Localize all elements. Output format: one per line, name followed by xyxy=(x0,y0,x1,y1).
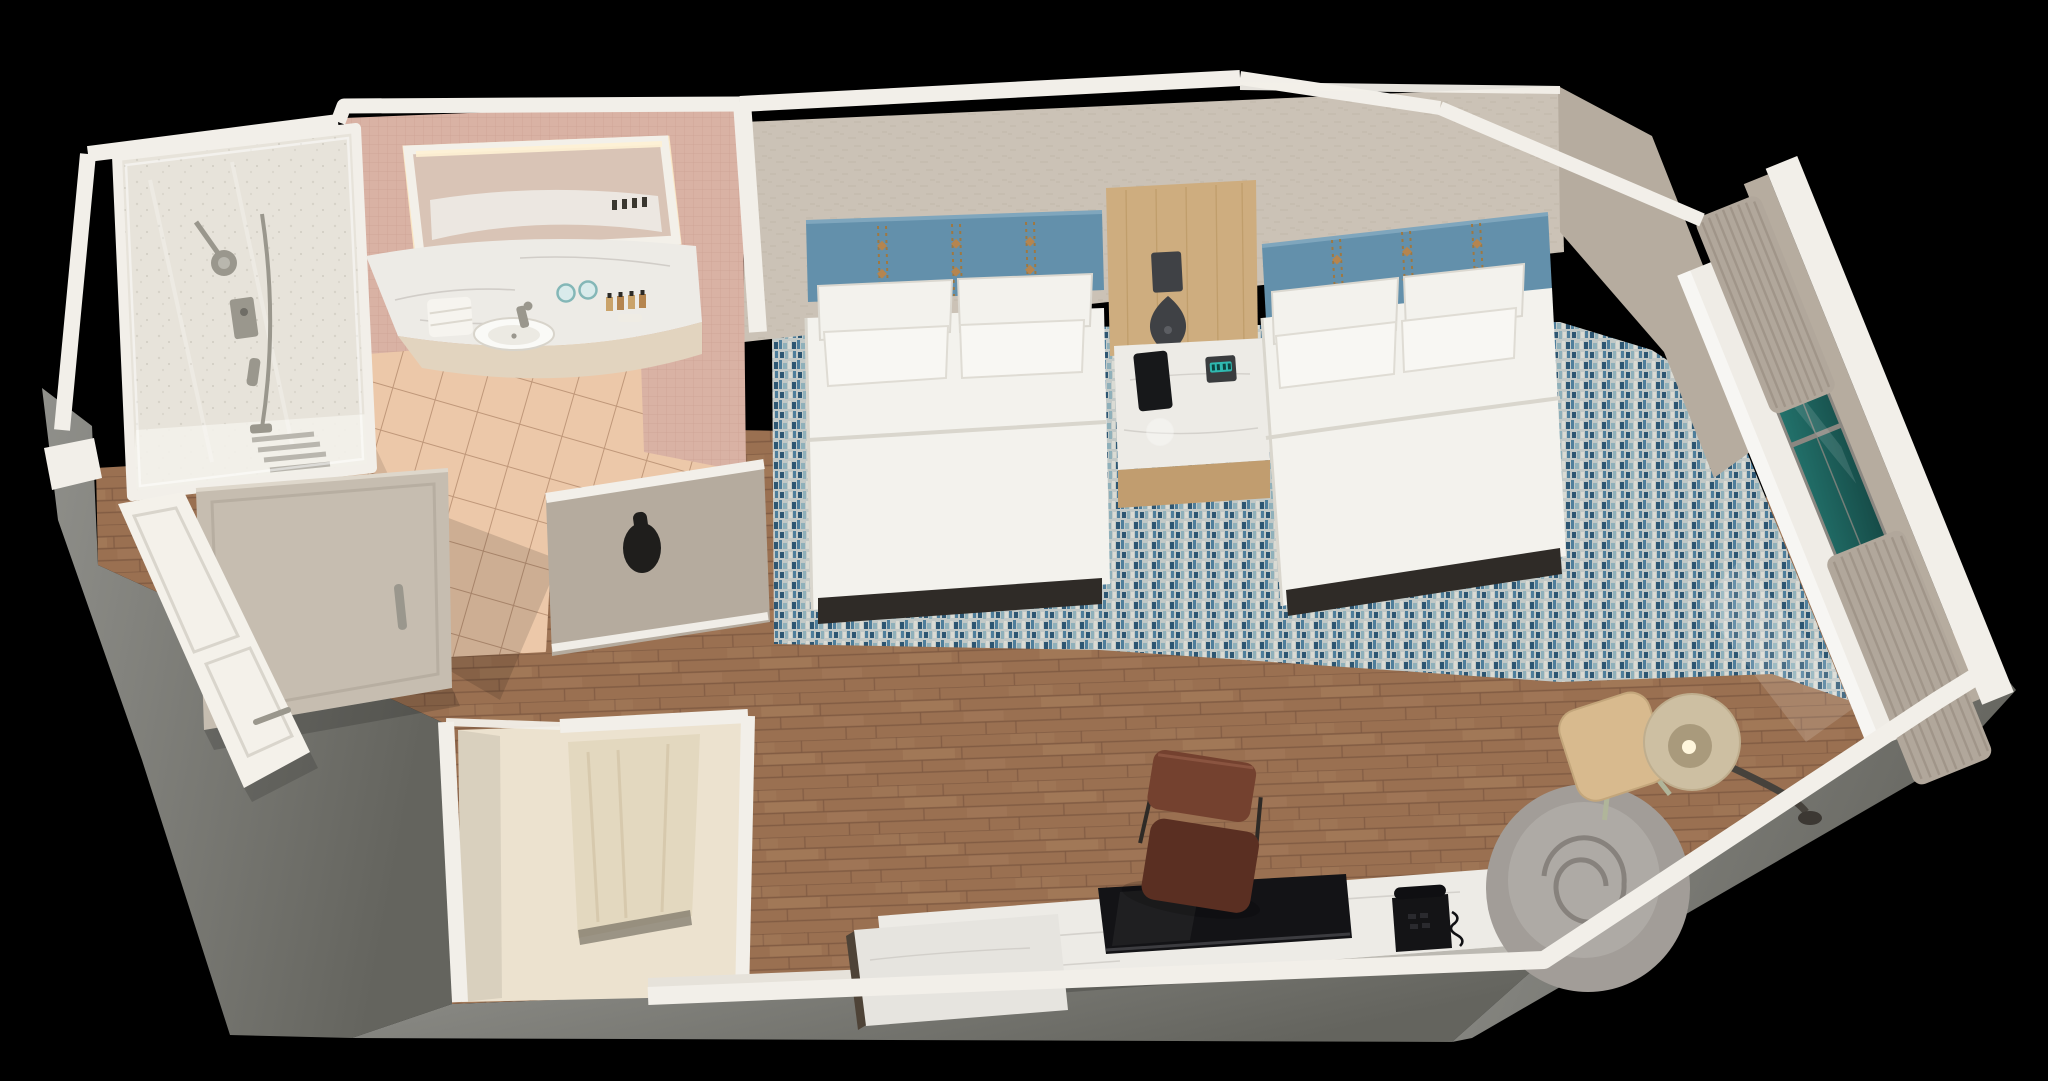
lamp-base xyxy=(1798,811,1822,825)
closet-wall-right xyxy=(742,716,748,998)
render-canvas: 3D cutaway floor-plan render of a hotel … xyxy=(0,0,2048,1081)
alarm-clock xyxy=(1205,355,1237,383)
bed-1 xyxy=(806,212,1110,624)
shower-enclosure xyxy=(117,128,372,500)
smartphone xyxy=(1133,350,1173,411)
lamp-bulb xyxy=(1682,740,1696,754)
soap-dish xyxy=(618,314,642,322)
closet-wall-top xyxy=(560,716,748,726)
bed-2 xyxy=(1262,214,1566,616)
tub-spout xyxy=(250,423,273,434)
vanity xyxy=(366,137,702,378)
water-carafe xyxy=(1147,419,1173,445)
closet-door xyxy=(568,734,700,945)
chair-seat xyxy=(1140,817,1261,915)
vanity-sink xyxy=(474,318,554,350)
bathroom-divider-wall xyxy=(546,464,770,656)
towel-stack xyxy=(427,297,474,338)
closet xyxy=(446,716,748,1002)
nightstand-area xyxy=(1106,180,1270,508)
nightstand xyxy=(1114,338,1270,508)
hotel-room-floorplan-render: 3D cutaway floor-plan render of a hotel … xyxy=(0,0,2048,1081)
